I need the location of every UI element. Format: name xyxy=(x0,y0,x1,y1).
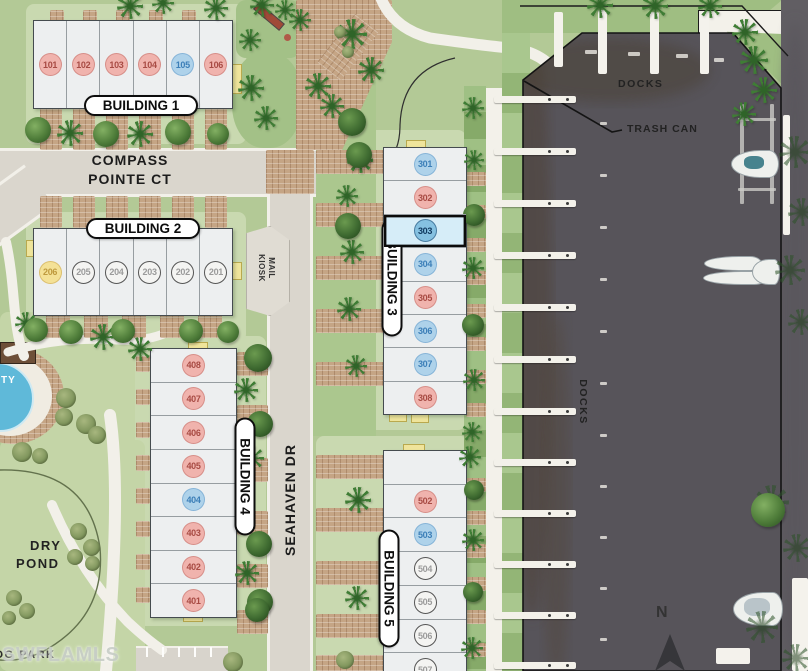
palm-tree-icon xyxy=(461,637,483,659)
palm-tree-icon xyxy=(642,0,668,19)
palm-tree-icon xyxy=(746,611,778,643)
tree-icon xyxy=(335,213,361,239)
street-label-seahaven: SEAHAVEN DR xyxy=(282,435,298,565)
tree-icon xyxy=(245,598,269,622)
palm-tree-icon xyxy=(788,309,808,335)
palm-tree-icon xyxy=(152,0,174,14)
palm-tree-icon xyxy=(462,97,484,119)
unit-number-badge: 303 xyxy=(414,219,437,242)
palm-tree-icon xyxy=(345,586,369,610)
palm-tree-icon xyxy=(340,240,364,264)
palm-tree-icon xyxy=(289,9,311,31)
palm-tree-icon xyxy=(250,0,274,17)
tree-icon xyxy=(244,344,272,372)
palm-tree-icon xyxy=(462,422,482,442)
north-label: N xyxy=(656,604,668,622)
palm-tree-icon xyxy=(462,529,484,551)
palm-tree-icon xyxy=(57,120,83,146)
tree-icon xyxy=(346,142,372,168)
tree-icon xyxy=(179,319,203,343)
bush-icon xyxy=(334,26,346,38)
bush-icon xyxy=(70,523,87,540)
watermark: SWFLAMLS xyxy=(2,644,119,667)
mail-kiosk-line2: KIOSK xyxy=(256,238,266,298)
palm-tree-icon xyxy=(337,297,361,321)
street-label-compass-2: POINTE CT xyxy=(50,171,210,187)
tree-icon xyxy=(111,319,135,343)
palm-tree-icon xyxy=(788,198,808,226)
palm-tree-icon xyxy=(751,77,777,103)
bush-icon xyxy=(85,556,100,571)
bush-icon xyxy=(12,442,32,462)
palm-tree-icon xyxy=(239,29,261,51)
palm-tree-icon xyxy=(732,19,758,45)
tree-icon xyxy=(59,320,83,344)
palm-tree-icon xyxy=(204,0,228,20)
mail-kiosk-line1: MAIL xyxy=(266,238,276,298)
palm-tree-icon xyxy=(128,337,152,361)
palm-tree-icon xyxy=(587,0,613,18)
bush-icon xyxy=(55,408,73,426)
trash-can-label: TRASH CAN xyxy=(627,123,698,135)
docks-label-top: DOCKS xyxy=(618,78,663,90)
north-arrow-icon xyxy=(648,630,692,671)
bush-icon xyxy=(6,590,22,606)
tree-icon xyxy=(463,204,485,226)
building-4-label: BUILDING 4 xyxy=(235,418,256,536)
palm-tree-icon xyxy=(234,378,258,402)
bush-icon xyxy=(342,46,354,58)
docks-label-side: DOCKS xyxy=(577,372,589,432)
palm-tree-icon xyxy=(698,0,722,18)
palm-tree-icon xyxy=(783,534,808,562)
building-1-label: BUILDING 1 xyxy=(84,95,198,116)
street-label-compass-1: COMPASS xyxy=(50,152,210,168)
community-site-plan: 101 102 103 104 105 106 206 205 204 203 … xyxy=(0,0,808,671)
tree-icon xyxy=(25,117,51,143)
bush-icon xyxy=(19,603,35,619)
palm-tree-icon xyxy=(462,257,484,279)
amenity-label-partial: TY xyxy=(1,375,16,386)
palm-tree-icon xyxy=(775,255,805,285)
tree-icon xyxy=(246,531,272,557)
palm-tree-icon xyxy=(779,136,808,168)
dry-pond-label-2: POND xyxy=(16,556,60,571)
palm-tree-icon xyxy=(127,121,153,147)
tree-icon xyxy=(462,314,484,336)
tree-icon xyxy=(217,321,239,343)
palm-tree-icon xyxy=(732,102,756,126)
dry-pond-label-1: DRY xyxy=(30,538,61,553)
unit-303-selected[interactable]: 303 xyxy=(384,214,466,247)
bush-icon xyxy=(83,539,100,556)
bush-icon xyxy=(67,549,83,565)
bush-icon xyxy=(2,611,16,625)
palm-tree-icon xyxy=(117,0,143,19)
bush-icon xyxy=(32,448,48,464)
palm-tree-icon xyxy=(464,150,484,170)
palm-tree-icon xyxy=(254,106,278,130)
bush-icon xyxy=(56,388,76,408)
building-2-label: BUILDING 2 xyxy=(86,218,200,239)
tree-icon xyxy=(207,123,229,145)
palm-tree-icon xyxy=(782,644,808,671)
palm-tree-icon xyxy=(238,75,264,101)
palm-tree-icon xyxy=(235,561,259,585)
mail-kiosk-label: MAIL KIOSK xyxy=(256,238,276,298)
palm-tree-icon xyxy=(358,57,384,83)
tree-icon xyxy=(338,108,366,136)
building-5-label: BUILDING 5 xyxy=(379,530,400,648)
tree-icon xyxy=(751,493,785,527)
bush-icon xyxy=(88,426,106,444)
palm-tree-icon xyxy=(459,446,481,468)
tree-icon xyxy=(93,121,119,147)
tree-icon xyxy=(463,582,483,602)
tree-icon xyxy=(165,119,191,145)
palm-tree-icon xyxy=(345,355,367,377)
bush-icon xyxy=(336,651,354,669)
tree-icon xyxy=(464,480,484,500)
palm-tree-icon xyxy=(740,46,768,74)
tree-icon xyxy=(24,318,48,342)
palm-tree-icon xyxy=(345,487,371,513)
bush-icon xyxy=(223,652,243,671)
palm-tree-icon xyxy=(336,185,358,207)
palm-tree-icon xyxy=(463,369,485,391)
